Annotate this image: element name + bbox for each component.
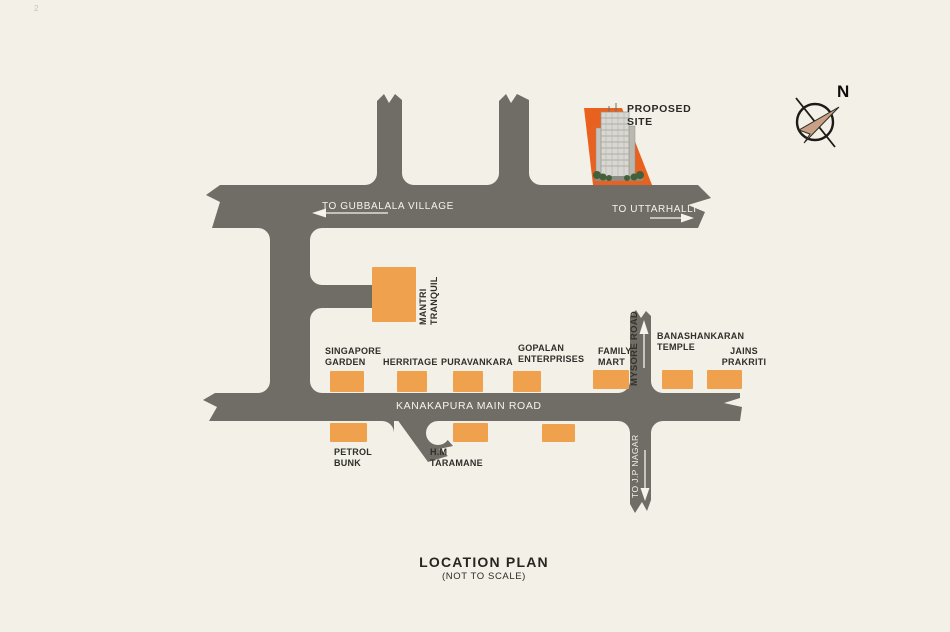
building-petrol-bunk	[330, 423, 367, 442]
label-family-mart: FAMILY MART	[598, 346, 632, 368]
label-herritage: HERRITAGE	[383, 357, 438, 368]
building-gopalan-enterprises	[513, 371, 541, 392]
map-subtitle: (NOT TO SCALE)	[359, 571, 609, 582]
building-mantri-tranquil	[372, 267, 416, 322]
building-herritage	[397, 371, 427, 392]
compass-north-label: N	[837, 82, 849, 102]
label-gopalan-enterprises: GOPALAN ENTERPRISES	[518, 343, 584, 365]
label-mantri-tranquil: MANTRI TRANQUIL	[418, 261, 444, 325]
corner-mark: 2	[34, 4, 38, 13]
left-connector-road	[270, 220, 310, 400]
north-stub-right	[499, 94, 529, 195]
building-unlabeled	[542, 424, 575, 442]
label-to-uttarhalli: TO UTTARHALLI	[612, 204, 697, 215]
label-to-jp-nagar: TO J.P NAGAR	[630, 432, 642, 498]
label-proposed-site: PROPOSED SITE	[627, 103, 691, 129]
label-singapore-garden: SINGAPORE GARDEN	[325, 346, 381, 368]
building-jains-prakriti	[707, 370, 742, 389]
map-title: LOCATION PLAN	[359, 554, 609, 570]
map-graphics	[0, 0, 950, 632]
label-petrol-bunk: PETROL BUNK	[334, 447, 372, 469]
building-banashankaran-temple	[662, 370, 693, 389]
label-hm-taramane: H.M TARAMANE	[430, 447, 483, 469]
mantri-access-road	[300, 285, 374, 308]
building-family-mart	[593, 370, 629, 389]
north-stub-left	[377, 94, 402, 195]
label-to-gubbalala-village: TO GUBBALALA VILLAGE	[322, 201, 454, 212]
label-kanakapura-main-road: KANAKAPURA MAIN ROAD	[396, 400, 542, 412]
location-plan: TO GUBBALALA VILLAGE TO UTTARHALLI KANAK…	[0, 0, 950, 632]
building-hm-taramane	[453, 423, 488, 442]
compass-rose	[796, 98, 839, 147]
label-jains-prakriti: JAINS PRAKRITI	[719, 346, 769, 368]
label-puravankara: PURAVANKARA	[441, 357, 513, 368]
building-puravankara	[453, 371, 483, 392]
building-singapore-garden	[330, 371, 364, 392]
